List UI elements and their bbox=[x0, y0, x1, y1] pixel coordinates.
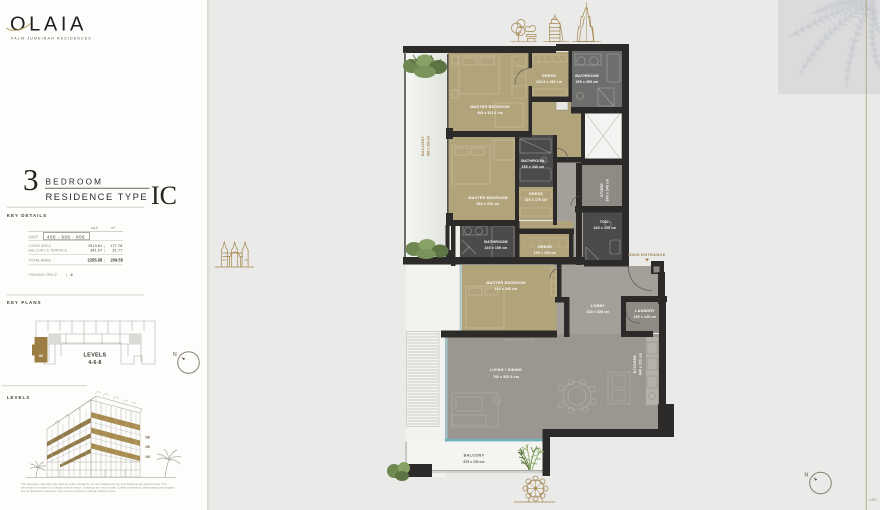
svg-text:KITCHEN: KITCHEN bbox=[633, 355, 637, 373]
svg-text:LAUNDRY: LAUNDRY bbox=[635, 309, 655, 313]
svg-text:240 x 145 cm: 240 x 145 cm bbox=[606, 179, 610, 202]
svg-text:IC: IC bbox=[151, 181, 177, 210]
svg-text:06: 06 bbox=[39, 354, 43, 358]
svg-text:LOBBY: LOBBY bbox=[591, 304, 605, 308]
svg-text:BATHROOM: BATHROOM bbox=[575, 74, 598, 78]
svg-text:195 x 145 cm: 195 x 145 cm bbox=[634, 315, 657, 319]
svg-text:BATHROOM: BATHROOM bbox=[521, 159, 544, 163]
svg-text:182.5 x 233 cm: 182.5 x 233 cm bbox=[536, 80, 562, 84]
svg-text:KEY PLANS: KEY PLANS bbox=[7, 300, 42, 305]
svg-text:N: N bbox=[805, 473, 809, 479]
svg-text:TOIL.: TOIL. bbox=[600, 220, 611, 224]
svg-text:318 x 328 cm: 318 x 328 cm bbox=[587, 310, 610, 314]
svg-text:are for illustrative purposes: are for illustrative purposes only and a… bbox=[21, 489, 117, 493]
svg-text:341.97: 341.97 bbox=[90, 248, 103, 253]
svg-text:|: | bbox=[104, 258, 105, 263]
svg-text:240 x 125 cm: 240 x 125 cm bbox=[594, 226, 617, 230]
svg-text:UNIT: UNIT bbox=[29, 234, 39, 239]
svg-text:BALCONY & TERRACE: BALCONY & TERRACE bbox=[29, 249, 68, 253]
svg-text:155 x 240 cm: 155 x 240 cm bbox=[522, 165, 545, 169]
svg-text:3-BR: 3-BR bbox=[869, 498, 877, 502]
svg-text:3: 3 bbox=[23, 162, 39, 197]
svg-text:DRESS: DRESS bbox=[538, 245, 552, 249]
svg-text:KEY DETAILS: KEY DETAILS bbox=[7, 213, 47, 218]
svg-text:346 x 211 cm: 346 x 211 cm bbox=[639, 353, 643, 376]
svg-text:4-6-8: 4-6-8 bbox=[88, 360, 101, 366]
svg-text:240 x 105 cm: 240 x 105 cm bbox=[485, 246, 508, 250]
svg-text:PALM JUMEIRAH RESIDENCES: PALM JUMEIRAH RESIDENCES bbox=[11, 37, 92, 41]
svg-text:MASTER BEDROOM: MASTER BEDROOM bbox=[486, 281, 525, 285]
svg-text:BALCONY: BALCONY bbox=[464, 454, 485, 458]
svg-text:MASTER BEDROOM: MASTER BEDROOM bbox=[468, 196, 507, 200]
svg-text:408 x 511.5 cm: 408 x 511.5 cm bbox=[477, 111, 503, 115]
svg-text:LEVELS: LEVELS bbox=[7, 395, 31, 400]
svg-text:31.77: 31.77 bbox=[112, 248, 123, 253]
svg-text:BEDROOM: BEDROOM bbox=[46, 178, 104, 187]
svg-text:195 x 105 cm: 195 x 105 cm bbox=[534, 251, 557, 255]
svg-text:PARKING SPACE: PARKING SPACE bbox=[29, 273, 58, 277]
svg-text:2255.58: 2255.58 bbox=[87, 258, 103, 263]
svg-text:MAIN ENTRANCE: MAIN ENTRANCE bbox=[628, 252, 665, 257]
svg-text:415 x 340 cm: 415 x 340 cm bbox=[495, 287, 518, 291]
svg-text:406 - 606 - 806: 406 - 606 - 806 bbox=[47, 235, 85, 240]
svg-text:BALCONY: BALCONY bbox=[421, 136, 425, 156]
svg-text:|: | bbox=[66, 273, 67, 277]
svg-text:995 x 100 cm: 995 x 100 cm bbox=[427, 136, 431, 156]
svg-text:540 x 420 cm: 540 x 420 cm bbox=[477, 202, 500, 206]
svg-text:sq.ft: sq.ft bbox=[91, 226, 98, 230]
svg-text:760 x 502.5 cm: 760 x 502.5 cm bbox=[493, 375, 519, 379]
svg-text:MASTER BEDROOM: MASTER BEDROOM bbox=[470, 105, 509, 109]
svg-text:DRESS: DRESS bbox=[542, 74, 556, 78]
svg-text:160 x 170 cm: 160 x 170 cm bbox=[525, 198, 548, 202]
svg-text:255 x 265 cm: 255 x 265 cm bbox=[576, 80, 599, 84]
svg-text:OLAIA: OLAIA bbox=[10, 14, 87, 36]
svg-text:|: | bbox=[104, 248, 105, 253]
svg-text:DRESS: DRESS bbox=[529, 192, 543, 196]
svg-text:LEVELS: LEVELS bbox=[84, 353, 107, 359]
svg-text:RESIDENCE TYPE: RESIDENCE TYPE bbox=[46, 191, 149, 202]
svg-text:TOTAL AREA: TOTAL AREA bbox=[29, 259, 52, 263]
svg-text:675 x 150 cm: 675 x 150 cm bbox=[464, 460, 485, 464]
svg-text:BATHROOM: BATHROOM bbox=[484, 240, 507, 244]
svg-text:N: N bbox=[173, 352, 177, 358]
svg-text:STORE: STORE bbox=[600, 183, 604, 197]
svg-text:LIVING AREA: LIVING AREA bbox=[29, 244, 52, 248]
svg-text:209.55: 209.55 bbox=[110, 258, 123, 263]
svg-text:LIVING / DINING: LIVING / DINING bbox=[490, 368, 522, 372]
